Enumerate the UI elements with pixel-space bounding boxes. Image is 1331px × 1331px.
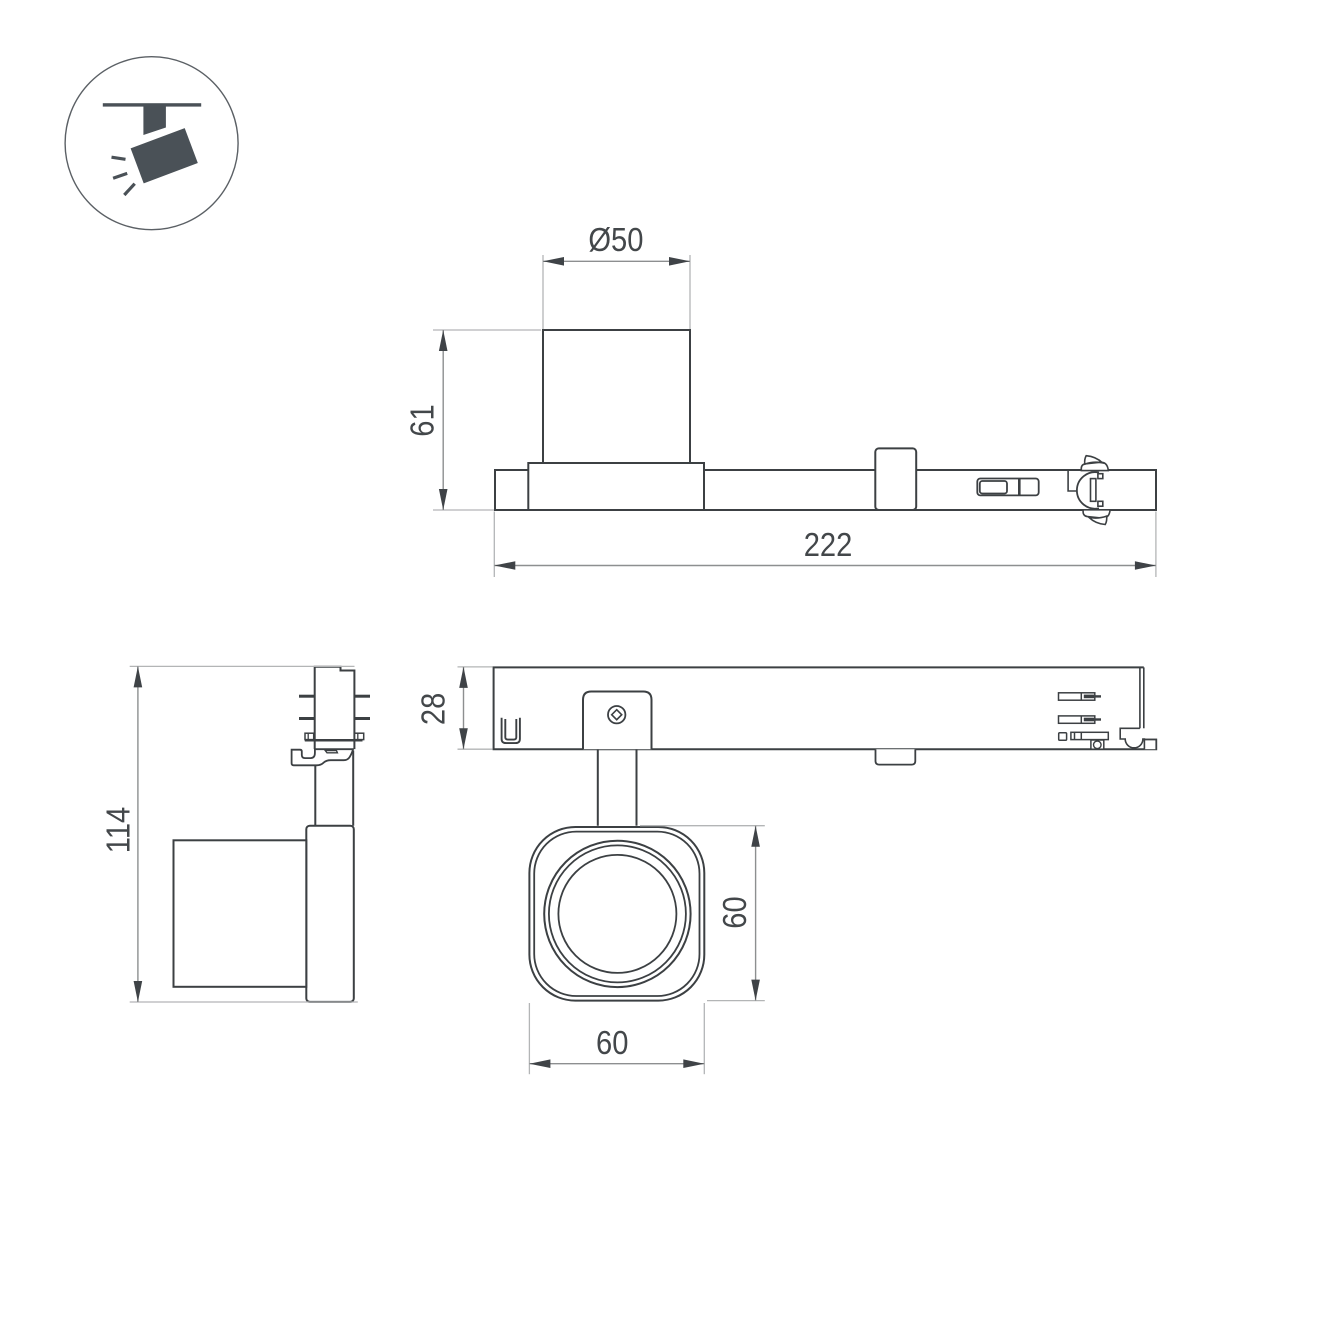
svg-text:Ø50: Ø50 <box>588 221 643 258</box>
svg-text:61: 61 <box>404 404 441 436</box>
svg-text:60: 60 <box>716 896 753 928</box>
svg-text:28: 28 <box>415 693 452 725</box>
svg-text:222: 222 <box>804 526 853 563</box>
svg-text:60: 60 <box>596 1024 628 1061</box>
svg-text:114: 114 <box>100 807 137 853</box>
